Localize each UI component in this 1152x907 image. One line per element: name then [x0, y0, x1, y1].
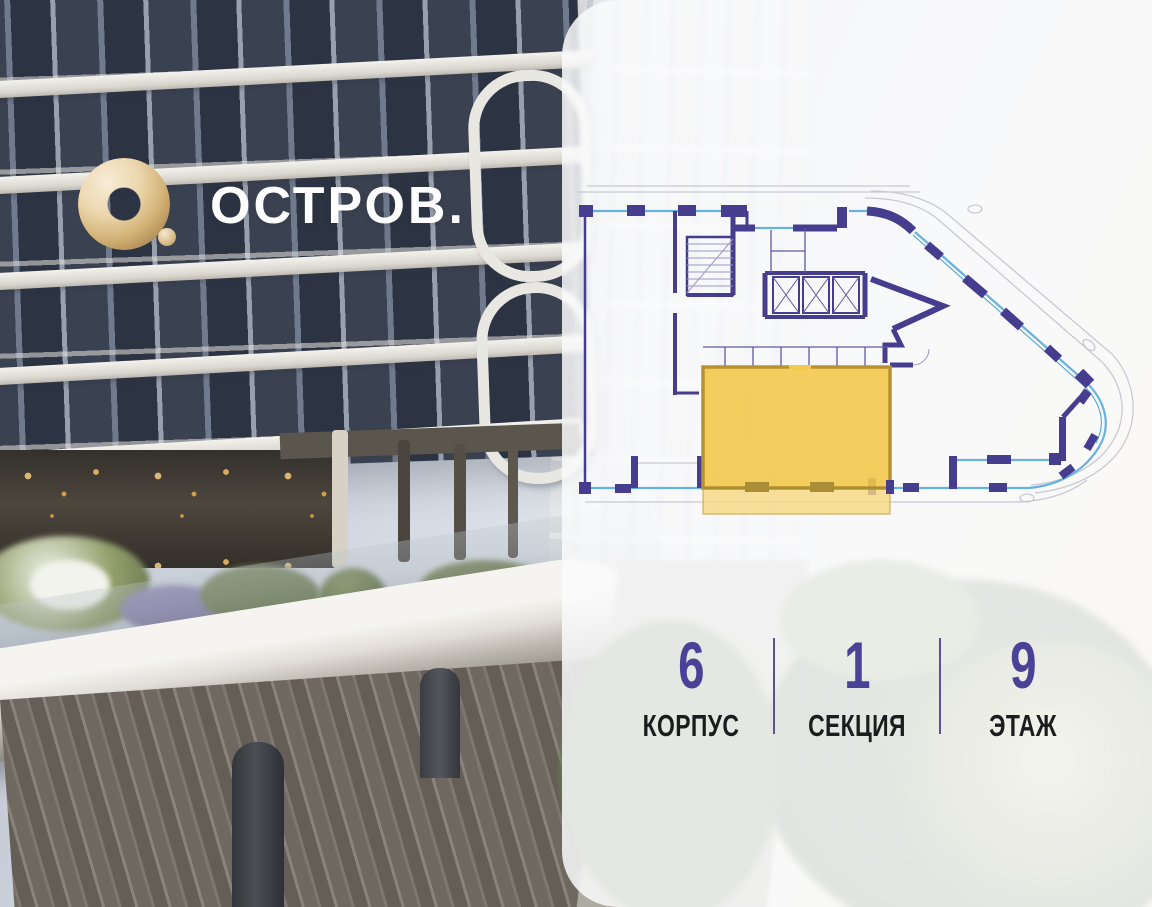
stat-sekciya: 1 СЕКЦИЯ: [775, 632, 939, 741]
glazing-accent: [913, 235, 1101, 443]
etazh-value: 9: [964, 632, 1082, 698]
logo-torus-icon: [78, 158, 174, 254]
sekciya-value: 1: [798, 632, 916, 698]
page: { "brand": { "name": "ОСТРОВ.", "logo_ic…: [0, 0, 1152, 907]
floor-plan: [575, 195, 1135, 525]
logo-dot-icon: [158, 228, 176, 246]
stat-korpus: 6 КОРПУС: [609, 632, 773, 741]
bridge-column: [420, 668, 460, 778]
floor-plan-svg: [575, 195, 1135, 525]
elevators: [773, 277, 859, 313]
brand-name: ОСТРОВ.: [210, 180, 466, 232]
sekciya-label: СЕКЦИЯ: [796, 710, 917, 741]
korpus-label: КОРПУС: [630, 710, 751, 741]
unit-area: [703, 367, 890, 488]
stat-etazh: 9 ЭТАЖ: [941, 632, 1105, 741]
korpus-value: 6: [632, 632, 750, 698]
selected-unit-highlight[interactable]: [703, 367, 894, 514]
column: [332, 430, 348, 568]
unit-corner-wall: [886, 480, 894, 494]
stairwell: [687, 237, 733, 295]
bridge-column: [232, 742, 284, 907]
brand-logo[interactable]: ОСТРОВ.: [78, 158, 466, 254]
door-swing: [913, 349, 929, 365]
unit-window-block: [810, 482, 834, 492]
unit-window-block: [745, 482, 769, 492]
etazh-label: ЭТАЖ: [962, 710, 1083, 741]
unit-balcony: [703, 488, 890, 514]
unit-stats: 6 КОРПУС 1 СЕКЦИЯ 9 ЭТАЖ: [562, 632, 1152, 741]
